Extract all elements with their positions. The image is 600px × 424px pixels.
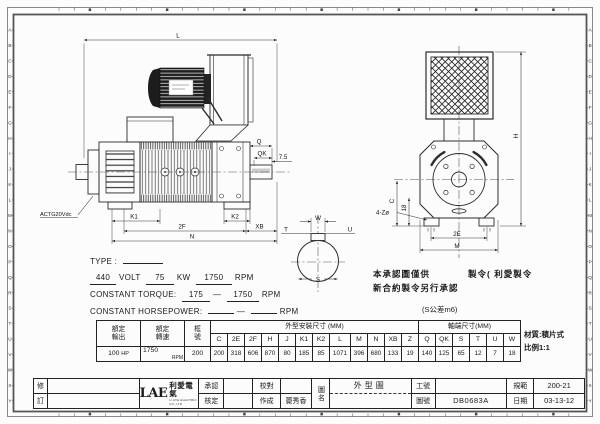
rpm-value: 1750 xyxy=(196,272,232,285)
air-filter-grid xyxy=(431,57,488,114)
rating-line: 440VOLT 75KW 1750RPM xyxy=(90,272,254,284)
date-value: 03-13-12 xyxy=(534,394,584,409)
torque-label: CONSTANT TORQUE: xyxy=(90,290,176,299)
work-dwg-values: DB0683A xyxy=(436,379,508,408)
header-shaft-group: 軸端尺寸(MM) xyxy=(419,321,521,334)
type-line: TYPE : xyxy=(90,256,166,268)
dim-value-K2: 85 xyxy=(313,347,330,362)
dim-value-H: 870 xyxy=(262,347,279,362)
dim-header-Z: Z xyxy=(402,334,419,347)
ruler-mark xyxy=(398,413,400,416)
dim-value-Z: 19 xyxy=(402,347,419,362)
ruler-mark: O xyxy=(8,244,12,249)
rev-bottom-label: 訂 xyxy=(34,394,47,409)
ruler-mark: B xyxy=(589,43,592,48)
dim-label-QK: QK xyxy=(258,151,268,158)
dim-header-2F: 2F xyxy=(245,334,262,347)
dim-header-U: U xyxy=(487,334,504,347)
ruler-mark: L xyxy=(9,198,12,203)
dim-header-L: L xyxy=(330,334,351,347)
dim-label-T: T xyxy=(284,227,288,234)
dim-value-2F: 606 xyxy=(245,347,262,362)
dim-label-M: M xyxy=(454,243,459,250)
revision-blank-col xyxy=(48,379,140,408)
torque-unit: RPM xyxy=(262,290,281,299)
tacho-label: ACTG20Vdc xyxy=(40,212,72,218)
dim-value-XB: 133 xyxy=(385,347,402,362)
dim-label-K2: K2 xyxy=(231,214,239,221)
dim-value-C: 200 xyxy=(211,347,228,362)
output-value: 100 xyxy=(108,350,119,357)
dim-value-2E: 318 xyxy=(228,347,245,362)
ruler-mark: E xyxy=(8,89,11,94)
rev-row-2 xyxy=(48,394,139,409)
ruler-mark: Y xyxy=(589,398,592,403)
dim-label-L: L xyxy=(176,33,180,40)
ruler-mark xyxy=(475,413,477,416)
ruler-mark: G xyxy=(588,120,592,125)
ruler-mark xyxy=(398,8,400,11)
speed-unit: RPM xyxy=(172,356,183,361)
ruler-mark xyxy=(320,413,322,416)
ruler-mark: O xyxy=(588,244,592,249)
type-label: TYPE : xyxy=(90,257,117,266)
note-part1: 本承認圖僅供 xyxy=(373,269,430,279)
proof-made-values: 薨秀香 xyxy=(281,379,312,408)
ruler-mark: D xyxy=(589,74,593,79)
approve-check-labels: 承認 核定 xyxy=(199,379,224,408)
cell-rated-speed: 1750RPM xyxy=(141,347,185,362)
dim-label-S: S xyxy=(316,277,320,284)
ruler-mark: F xyxy=(589,105,592,110)
dim-label-7-5: 7.5 xyxy=(279,154,288,161)
rpm-label: RPM xyxy=(235,273,254,282)
hp-label: CONSTANT HORSEPOWER: xyxy=(90,307,202,316)
ruler-mark: J xyxy=(9,167,11,172)
made-by-value: 薨秀香 xyxy=(281,394,311,409)
dim-value-Q: 140 xyxy=(419,347,436,362)
spec-date-values: 200-21 03-13-12 xyxy=(534,379,584,408)
proof-label: 校對 xyxy=(253,379,280,394)
dim-value-K1: 185 xyxy=(296,347,313,362)
check-value xyxy=(224,394,252,409)
lae-logo: LAE xyxy=(140,386,168,401)
company-logo-cell: LAE 利愛電氣 LI AYE ELECTRIC CO.,LTD xyxy=(140,379,200,408)
header-outline-group: 外型安裝尺寸 (MM) xyxy=(211,321,419,334)
dim-value-N: 680 xyxy=(368,347,385,362)
ruler-mark: T xyxy=(8,321,11,326)
header-rated-output: 額定 輸出 xyxy=(97,321,141,347)
rev-top-label: 修 xyxy=(34,379,47,394)
ruler-mark: K xyxy=(8,182,12,187)
dim-header-H: H xyxy=(262,334,279,347)
ruler-mark: F xyxy=(8,105,11,110)
ruler-mark: H xyxy=(8,136,11,141)
speed-value: 1750 xyxy=(143,347,158,354)
ruler-mark: M xyxy=(8,213,12,218)
hp-dash: — xyxy=(237,307,245,316)
ruler-mark: L xyxy=(589,198,592,203)
ruler-mark: Q xyxy=(8,275,12,280)
approve-check-values xyxy=(224,379,253,408)
dim-header-N: N xyxy=(368,334,385,347)
ruler-mark: Q xyxy=(588,275,592,280)
spec-no-label: 規範 xyxy=(507,379,533,394)
dim-value-U: 7 xyxy=(487,347,504,362)
dim-header-K2: K2 xyxy=(313,334,330,347)
ruler-mark: X xyxy=(8,383,11,388)
dim-label-2F: 2F xyxy=(178,224,185,231)
ruler-mark: X xyxy=(589,383,592,388)
hp-from-blank xyxy=(208,313,234,314)
cell-frame: 200 xyxy=(185,347,211,362)
ruler-mark: U xyxy=(8,337,11,342)
dim-header-QK: QK xyxy=(436,334,453,347)
motor-side-view xyxy=(76,55,272,209)
revision-label-col: 修 訂 xyxy=(34,379,48,408)
work-no-value xyxy=(436,379,507,394)
date-label: 日期 xyxy=(507,394,533,409)
ruler-mark xyxy=(552,413,554,416)
work-no-label: 工號 xyxy=(412,379,435,394)
ruler-mark: N xyxy=(8,228,11,233)
torque-dash: — xyxy=(213,290,221,299)
side-view-dimensions: L Q QK 7.5 K1 K2 2F XB N ACTG20Vdc xyxy=(40,33,292,245)
ruler-mark: E xyxy=(589,89,592,94)
blower-motor xyxy=(148,68,222,124)
ruler-mark xyxy=(552,8,554,11)
output-unit: HP xyxy=(121,351,129,357)
check-label: 核定 xyxy=(199,394,223,409)
type-blank xyxy=(123,263,163,264)
approval-note-line2: 新合約製令另行承認 xyxy=(373,282,459,294)
drawing-name-col: 外型圖 xyxy=(330,379,412,408)
ruler-mark: V xyxy=(8,352,12,357)
dim-label-C: C xyxy=(389,198,396,203)
ruler-mark: T xyxy=(589,321,592,326)
ruler-mark: U xyxy=(589,337,592,342)
note-part2: 製令( 利愛製令 xyxy=(468,269,532,279)
ruler-mark: R xyxy=(8,290,12,295)
spec-date-labels: 規範 日期 xyxy=(507,379,534,408)
torque-to: 1750 xyxy=(227,289,259,302)
ruler-mark: I xyxy=(9,151,10,156)
shaft-section-detail: W T U S xyxy=(281,215,355,292)
kw-value: 75 xyxy=(146,272,174,285)
header-frame: 框 號 xyxy=(185,321,211,347)
volt-value: 440 xyxy=(90,272,116,285)
cell-rated-output: 100 HP xyxy=(97,347,141,362)
dim-label-XB: XB xyxy=(255,224,263,231)
ruler-mark xyxy=(89,413,91,416)
dim-header-2E: 2E xyxy=(228,334,245,347)
dim-header-T: T xyxy=(470,334,487,347)
ruler-mark: G xyxy=(8,120,12,125)
dim-label-N: N xyxy=(190,234,194,241)
ruler-mark: D xyxy=(8,74,12,79)
drawing-name-value: 外型圖 xyxy=(330,379,411,394)
made-label: 作成 xyxy=(253,394,280,409)
ruler-mark: I xyxy=(590,151,591,156)
ruler-mark: M xyxy=(588,213,592,218)
dim-header-M: M xyxy=(351,334,368,347)
dim-label-2E: 2E xyxy=(453,231,461,238)
dim-header-S: S xyxy=(453,334,470,347)
ruler-mark xyxy=(320,8,322,11)
dim-header-C: C xyxy=(211,334,228,347)
dim-header-Q: Q xyxy=(419,334,436,347)
dim-label-U: U xyxy=(348,227,352,234)
header-rated-speed: 額定 轉速 xyxy=(141,321,185,347)
ruler-mark: P xyxy=(589,259,592,264)
work-dwg-labels: 工號 圖號 xyxy=(412,379,436,408)
dim-value-T: 12 xyxy=(470,347,487,362)
ruler-mark: H xyxy=(589,136,592,141)
ruler-mark: W xyxy=(588,368,593,373)
dim-header-W: W xyxy=(504,334,521,347)
dim-label-Q: Q xyxy=(257,139,262,146)
proof-value xyxy=(281,379,311,394)
material-note: 材質:積片式 xyxy=(524,329,564,340)
proof-made-labels: 校對 作成 xyxy=(253,379,281,408)
dim-value-J: 80 xyxy=(279,347,296,362)
dim-label-4-Z: 4-Zø xyxy=(376,210,389,217)
ruler-mark: A xyxy=(8,28,12,33)
ruler-mark: Y xyxy=(8,398,11,403)
dwg-no-label: 圖號 xyxy=(412,394,435,409)
spec-no-value: 200-21 xyxy=(534,379,584,394)
dim-label-H: H xyxy=(513,134,520,138)
drawing-name-blank xyxy=(330,394,411,409)
dim-label-18: 18 xyxy=(401,204,408,211)
dim-value-M: 396 xyxy=(351,347,368,362)
hp-unit: RPM xyxy=(280,307,299,316)
hp-to-blank xyxy=(251,313,277,314)
ruler-mark: J xyxy=(589,167,591,172)
tolerance-note: (S公差m6) xyxy=(422,304,457,315)
company-name-cn: 利愛電氣 xyxy=(169,382,198,398)
ruler-mark: B xyxy=(8,43,11,48)
title-block: 修 訂 LAE 利愛電氣 LI AYE ELECTRIC CO.,LTD 承認 … xyxy=(33,378,585,409)
dim-header-XB: XB xyxy=(385,334,402,347)
dim-value-S: 65 xyxy=(453,347,470,362)
torque-from: 175 xyxy=(182,289,210,302)
rev-row-1 xyxy=(48,379,139,394)
company-name-en: LI AYE ELECTRIC CO.,LTD xyxy=(169,398,198,406)
approve-value xyxy=(224,379,252,394)
dim-value-L: 1071 xyxy=(330,347,351,362)
ruler-mark: P xyxy=(8,259,11,264)
ruler-mark: C xyxy=(8,59,12,64)
ruler-mark: S xyxy=(589,306,592,311)
ruler-mark xyxy=(243,8,245,11)
ruler-mark xyxy=(89,8,91,11)
ruler-mark xyxy=(243,413,245,416)
dim-label-W: W xyxy=(315,215,321,222)
dim-value-QK: 125 xyxy=(436,347,453,362)
torque-line: CONSTANT TORQUE: 175— 1750RPM xyxy=(90,289,281,301)
ruler-mark xyxy=(166,413,168,416)
dim-header-J: J xyxy=(279,334,296,347)
ruler-mark xyxy=(475,8,477,11)
approval-note-line1: 本承認圖僅供製令( 利愛製令 xyxy=(373,268,532,280)
drawing-name-label: 圖名 xyxy=(315,386,325,402)
dimension-table: 額定 輸出 額定 轉速 框 號 外型安裝尺寸 (MM) 軸端尺寸(MM) C2E… xyxy=(96,320,521,362)
dim-value-W: 18 xyxy=(504,347,521,362)
ruler-mark: S xyxy=(8,306,11,311)
drawing-name-label-col: 圖名 xyxy=(312,379,330,408)
ruler-mark: N xyxy=(589,228,592,233)
drawing-sheet: AABBCCDDEEFFGGHHIIJJKKLLMMNNOOPPQQRRSSTT… xyxy=(0,0,600,424)
dim-header-K1: K1 xyxy=(296,334,313,347)
dim-label-K1: K1 xyxy=(130,214,138,221)
kw-label: KW xyxy=(177,273,191,282)
scale-note: 比例1:1 xyxy=(524,342,550,353)
volt-label: VOLT xyxy=(119,273,140,282)
ruler-mark xyxy=(166,8,168,11)
ruler-mark: C xyxy=(589,59,593,64)
ruler-mark: R xyxy=(589,290,593,295)
approve-label: 承認 xyxy=(199,379,223,394)
dwg-no-value: DB0683A xyxy=(436,394,507,409)
horsepower-line: CONSTANT HORSEPOWER: — RPM xyxy=(90,306,298,318)
